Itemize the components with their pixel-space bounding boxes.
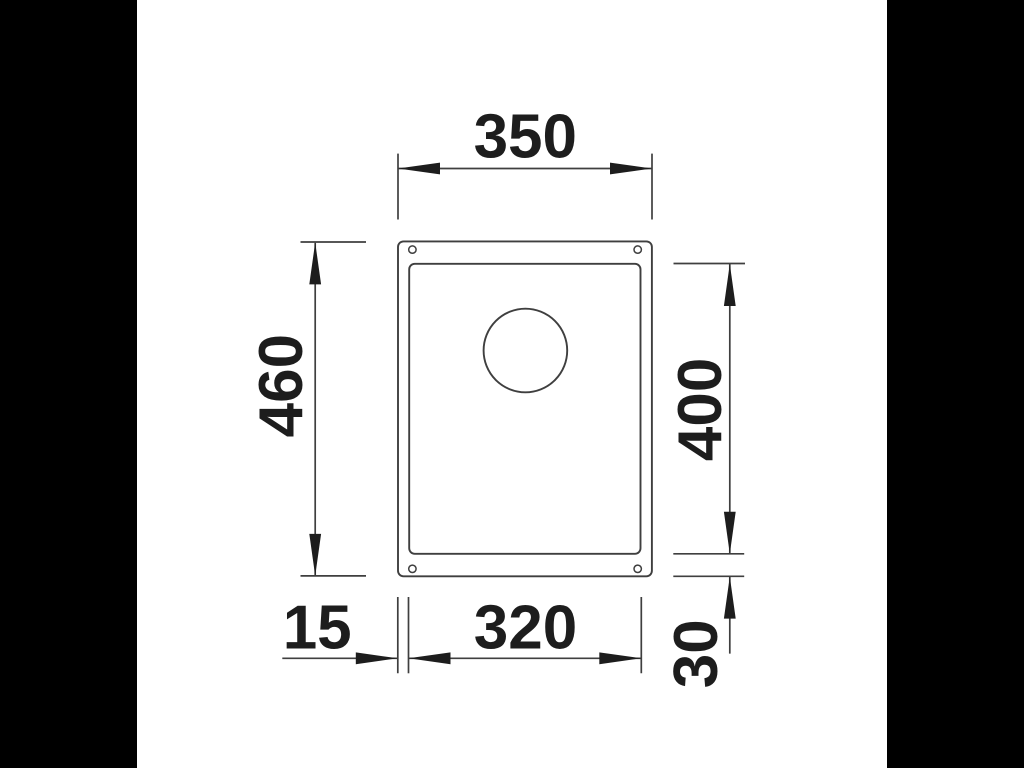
- svg-text:30: 30: [662, 619, 731, 688]
- svg-text:320: 320: [474, 593, 577, 662]
- svg-text:400: 400: [666, 358, 735, 461]
- svg-text:15: 15: [283, 593, 352, 662]
- svg-text:460: 460: [247, 334, 316, 437]
- svg-text:350: 350: [474, 102, 577, 171]
